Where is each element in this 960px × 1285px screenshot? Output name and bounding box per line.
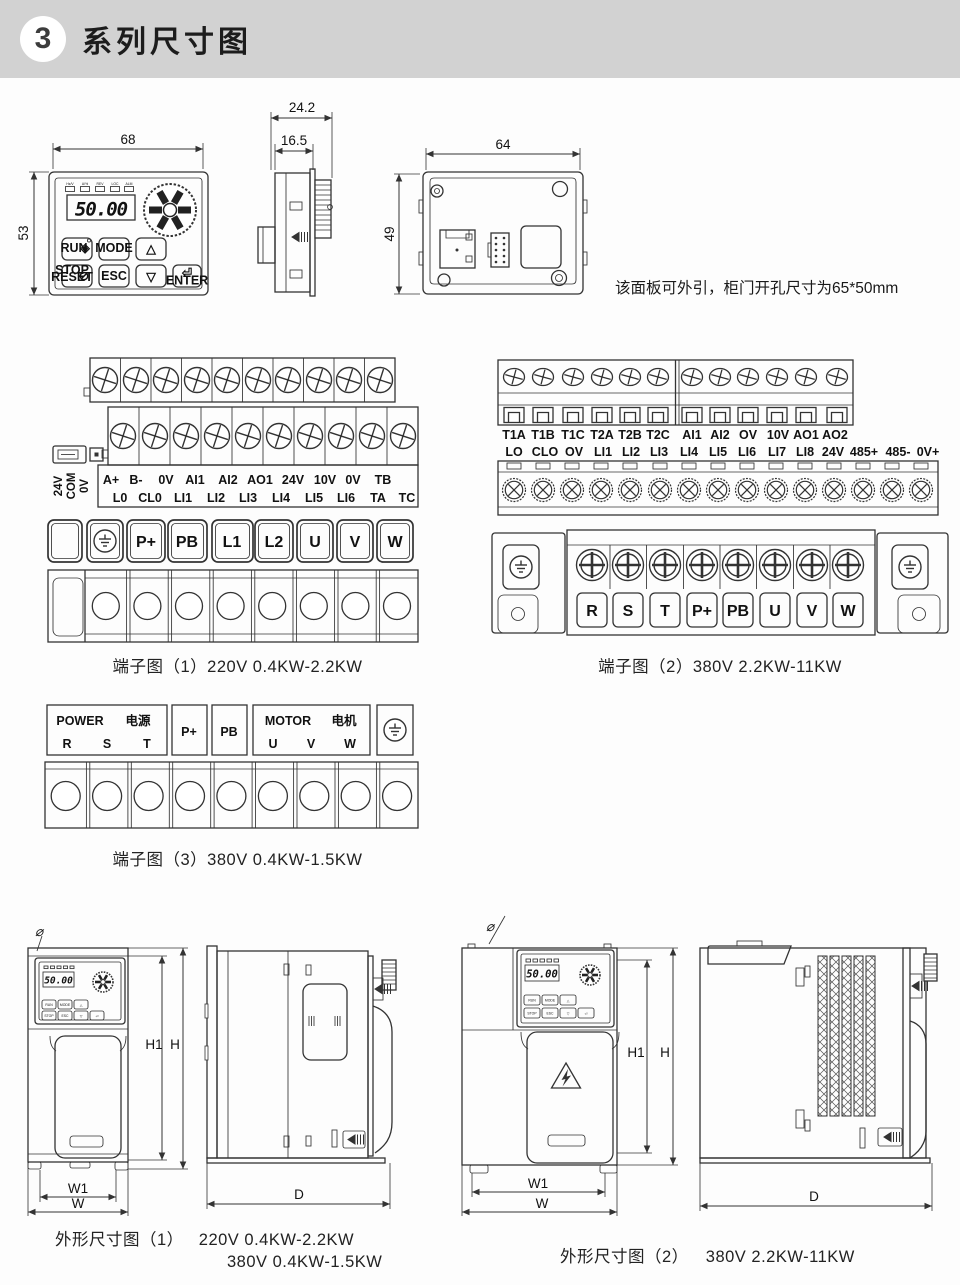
svg-text:LI1: LI1 [174,491,192,505]
svg-text:⏎: ⏎ [585,1012,588,1016]
dim-label: D [809,1189,819,1204]
power-terminal-block: R S T P+ PB U V W [492,530,948,635]
svg-text:24V: 24V [822,445,845,459]
svg-text:AO1: AO1 [793,428,819,442]
outline2-caption-spec: 380V 2.2KW-11KW [706,1248,855,1266]
svg-text:T2B: T2B [618,428,642,442]
svg-text:W: W [840,603,856,620]
svg-text:V: V [307,737,316,751]
svg-text:△: △ [80,1004,83,1008]
stop-icon: ⊘ [79,269,89,283]
terminal3-caption: 端子图（3）380V 0.4KW-1.5KW [45,846,430,870]
terminal-diagram-3: POWER 电源 R S T P+ PB MOTOR 电机 U V W [45,700,430,845]
terminal-diagram-1: 24V COM 0V A+B- 0VAI1 AI2AO1 24V10V 0VTB… [45,352,430,650]
knob-side [373,960,396,1000]
svg-text:MODE: MODE [60,1003,71,1007]
svg-text:STOP: STOP [44,1014,54,1018]
ground-icon [510,556,532,578]
display-value: 50.00 [75,199,128,221]
svg-text:A+: A+ [103,473,119,487]
svg-text:P+: P+ [181,725,197,739]
dim-label: 68 [120,132,135,147]
svg-text:LI6: LI6 [738,445,756,459]
dim-w1: W1 [472,1173,605,1197]
svg-text:485-: 485- [885,445,910,459]
label-pad [521,226,561,268]
up-arrow-icon: △ [145,242,157,256]
svg-text:LI8: LI8 [796,445,814,459]
led-label: REV [97,182,105,186]
knob-side [924,954,937,981]
svg-text:AI2: AI2 [710,428,730,442]
led-label: ALM [126,182,133,186]
latch-icon [348,1135,364,1145]
dim-label: 16.5 [281,133,307,148]
potentiometer-knob-icon[interactable] [144,184,196,236]
terminal2-caption: 端子图（2）380V 2.2KW-11KW [490,653,950,677]
svg-text:T: T [660,603,670,620]
section-number-badge: 3 [20,16,66,62]
terminal-label: 24V [53,475,65,496]
svg-text:L2: L2 [265,534,284,551]
svg-text:LI5: LI5 [709,445,727,459]
svg-text:PB: PB [176,534,198,551]
svg-text:⏎: ⏎ [96,1015,99,1019]
svg-text:LI6: LI6 [337,491,355,505]
dim-width-68: 68 [53,132,203,169]
svg-text:W: W [344,737,356,751]
svg-text:485+: 485+ [850,445,878,459]
led-label: LOC [112,182,120,186]
side-cover-plate [303,984,347,1060]
dim-label: W1 [528,1176,548,1191]
esc-label: ESC [101,269,127,283]
dim-label: 49 [382,226,397,241]
control-terminal-strip [498,360,853,425]
ground-icon [899,556,921,578]
svg-text:CLO: CLO [532,445,559,459]
warning-triangle-icon [552,1063,581,1088]
svg-text:T1A: T1A [502,428,526,442]
terminal-label: 0V [79,479,91,493]
rj45-port[interactable] [440,230,475,268]
pin-header [488,233,509,267]
outline1-caption-label: 外形尺寸图（1） [55,1231,184,1249]
dim-d: D [700,1163,932,1211]
panel-note: 该面板可外引，柜门开孔尺寸为65*50mm [615,276,898,298]
outline1-caption-spec2: 380V 0.4KW-1.5KW [227,1253,395,1272]
led-label: Hz/V [66,182,74,186]
svg-text:TC: TC [399,491,416,505]
outline2-side-drawing: D [688,926,953,1238]
latch-icon [884,1132,900,1142]
terminal1-caption: 端子图（1）220V 0.4KW-2.2KW [45,653,430,677]
svg-text:AO2: AO2 [822,428,848,442]
power-terminal-labels: P+ PB L1 L2 U V W [48,520,413,562]
mode-label: MODE [95,241,133,255]
svg-text:U: U [769,603,781,620]
svg-text:L0: L0 [113,491,128,505]
keypad-front-drawing: 68 53 Hz/V A/% REV LOC ALM 50.00 RUN ◈ [15,96,240,308]
terminal-labels-row1: A+B- 0VAI1 AI2AO1 24V10V 0VTB [103,473,392,487]
svg-text:V: V [807,603,818,620]
svg-text:S: S [103,737,111,751]
svg-text:LO: LO [505,445,523,459]
dim-label: H1 [627,1045,644,1060]
outline1-front-drawing: ⌀ 50.00 RUNMODE△ STOPESC▽⏎ [15,912,220,1214]
svg-text:电源: 电源 [125,713,151,728]
hole-dia-label: ⌀ [35,924,45,939]
run-icon: ◈ [79,241,91,255]
dim-back-height-49: 49 [382,174,420,294]
svg-text:TA: TA [370,491,386,505]
terminal-block-row [45,762,418,828]
dim-label: W1 [68,1181,88,1196]
svg-text:P+: P+ [692,603,712,620]
svg-text:CL0: CL0 [138,491,162,505]
outline1-caption: 外形尺寸图（1） 220V 0.4KW-2.2KW 380V 0.4KW-1.5… [55,1226,395,1272]
svg-text:OV: OV [739,428,758,442]
outline1-side-drawing: D [205,926,420,1218]
lower-terminal-strip [498,461,938,515]
svg-text:0V+: 0V+ [917,445,940,459]
terminal-labels-row2: LOCLO OVLI1 LI2LI3 LI4LI5 LI6LI7 LI824V … [505,445,939,459]
led-indicators: Hz/V A/% REV LOC ALM [66,182,134,192]
dim-label: W [536,1196,549,1211]
dim-label: H1 [145,1037,162,1052]
keypad-side-drawing: 24.2 16.5 [242,94,374,312]
ground-icon [94,530,116,552]
enter-label: ENTER [166,274,208,288]
dim-height-53: 53 [16,172,49,295]
svg-text:T2C: T2C [646,428,670,442]
dim-label: D [294,1187,304,1202]
svg-text:T1C: T1C [561,428,585,442]
dim-depth-16-5: 16.5 [275,133,313,170]
outline2-caption-label: 外形尺寸图（2） [560,1248,689,1266]
outline2-front-drawing: ⌀ 50.00 RUNMODE△ STOPESC▽⏎ [458,905,703,1237]
svg-text:LI7: LI7 [768,445,786,459]
svg-text:MODE: MODE [545,999,556,1003]
svg-text:PB: PB [220,725,237,739]
svg-text:P+: P+ [136,534,156,551]
dim-label: H [170,1037,180,1052]
svg-text:ESC: ESC [547,1012,555,1016]
svg-text:U: U [309,534,321,551]
svg-text:LI3: LI3 [239,491,257,505]
svg-text:T2A: T2A [590,428,614,442]
control-terminal-deck-b [102,407,418,465]
mini-knob-icon [580,965,600,985]
page-title: 系列尺寸图 [82,17,252,61]
svg-text:24V: 24V [282,473,305,487]
latch-icon [292,232,308,242]
svg-text:▽: ▽ [567,1012,570,1016]
svg-text:▽: ▽ [80,1015,83,1019]
led-label: A/% [82,182,88,186]
svg-text:AI1: AI1 [185,473,205,487]
front-cover [50,1036,126,1158]
section-number: 3 [35,22,52,56]
svg-text:LI5: LI5 [305,491,323,505]
mini-keypad: 50.00 RUNMODE△ STOPESC▽⏎ [35,958,125,1024]
svg-text:LI2: LI2 [622,445,640,459]
manual-page: 3 系列尺寸图 68 53 Hz/V A/% REV LOC ALM 50.00 [0,0,960,1285]
svg-text:电机: 电机 [331,713,357,728]
svg-text:B-: B- [129,473,142,487]
svg-text:RUN: RUN [45,1003,53,1007]
svg-text:PB: PB [727,603,749,620]
label-bar: POWER 电源 R S T P+ PB MOTOR 电机 U V W [47,705,413,755]
svg-text:T: T [143,737,151,751]
terminal-labels-row2: L0CL0 LI1LI2 LI3LI4 LI5LI6 TATC [113,491,416,505]
svg-text:AI2: AI2 [218,473,238,487]
svg-text:LI1: LI1 [594,445,612,459]
terminal-labels-row1: T1AT1B T1CT2A T2BT2C AI1AI2 OV10V AO1AO2 [502,428,848,442]
dim-h1: H1 [128,956,167,1160]
front-cover [521,1032,619,1163]
svg-text:AO1: AO1 [247,473,273,487]
svg-text:AI1: AI1 [682,428,702,442]
svg-text:MOTOR: MOTOR [265,714,311,728]
plug-pin-labels: 24V COM 0V [53,473,91,500]
control-terminal-deck-a [84,358,395,402]
dim-h: H [128,948,188,1169]
svg-text:10V: 10V [314,473,337,487]
keypad-back-drawing: 64 49 [388,138,610,310]
dim-label: H [660,1045,670,1060]
page-header: 3 系列尺寸图 [0,0,960,78]
outline1-caption-spec1: 220V 0.4KW-2.2KW [199,1231,354,1249]
svg-text:OV: OV [565,445,584,459]
dim-h1: H1 [617,960,652,1153]
svg-text:U: U [268,737,277,751]
svg-text:TB: TB [375,473,392,487]
power-plug-connector [53,446,103,463]
mini-display-value: 50.00 [526,969,558,981]
mini-display-value: 50.00 [44,976,73,987]
svg-text:10V: 10V [767,428,790,442]
svg-text:△: △ [567,999,570,1003]
svg-text:V: V [350,534,361,551]
terminal-label: COM [66,473,78,500]
panel-knob-side [315,180,332,238]
svg-text:LI3: LI3 [650,445,668,459]
svg-text:RUN: RUN [528,999,536,1003]
svg-text:STOP: STOP [527,1012,537,1016]
down-arrow-icon: ▽ [145,270,157,284]
svg-text:R: R [586,603,598,620]
svg-text:S: S [623,603,634,620]
svg-text:T1B: T1B [531,428,555,442]
dim-label: W [72,1196,85,1211]
svg-text:L1: L1 [223,534,242,551]
svg-text:ESC: ESC [62,1014,70,1018]
dim-label: 53 [16,225,31,240]
dim-label: 24.2 [289,100,315,115]
terminal-diagram-2: T1AT1B T1CT2A T2BT2C AI1AI2 OV10V AO1AO2… [490,355,950,645]
hole-dia-label: ⌀ [486,919,496,934]
svg-text:R: R [62,737,71,751]
latch-icon [912,981,928,991]
svg-text:LI4: LI4 [272,491,290,505]
svg-text:0V: 0V [345,473,361,487]
keypad-buttons: RUN ◈ MODE △ STOP RESET ⊘ ESC ▽ ⏎ ENTER [51,238,208,288]
ground-icon [384,719,406,741]
heatsink-fins [818,956,875,1116]
mini-keypad: 50.00 RUNMODE△ STOPESC▽⏎ [517,950,614,1027]
svg-text:POWER: POWER [56,714,103,728]
svg-text:0V: 0V [158,473,174,487]
power-terminal-block [48,570,418,642]
svg-text:LI2: LI2 [207,491,225,505]
outline2-caption: 外形尺寸图（2） 380V 2.2KW-11KW [560,1243,855,1267]
dim-d: D [207,1163,390,1209]
dim-label: 64 [495,137,511,152]
svg-text:LI4: LI4 [680,445,698,459]
svg-text:W: W [387,534,403,551]
mini-knob-icon [93,972,113,992]
dim-back-width-64: 64 [426,137,580,170]
